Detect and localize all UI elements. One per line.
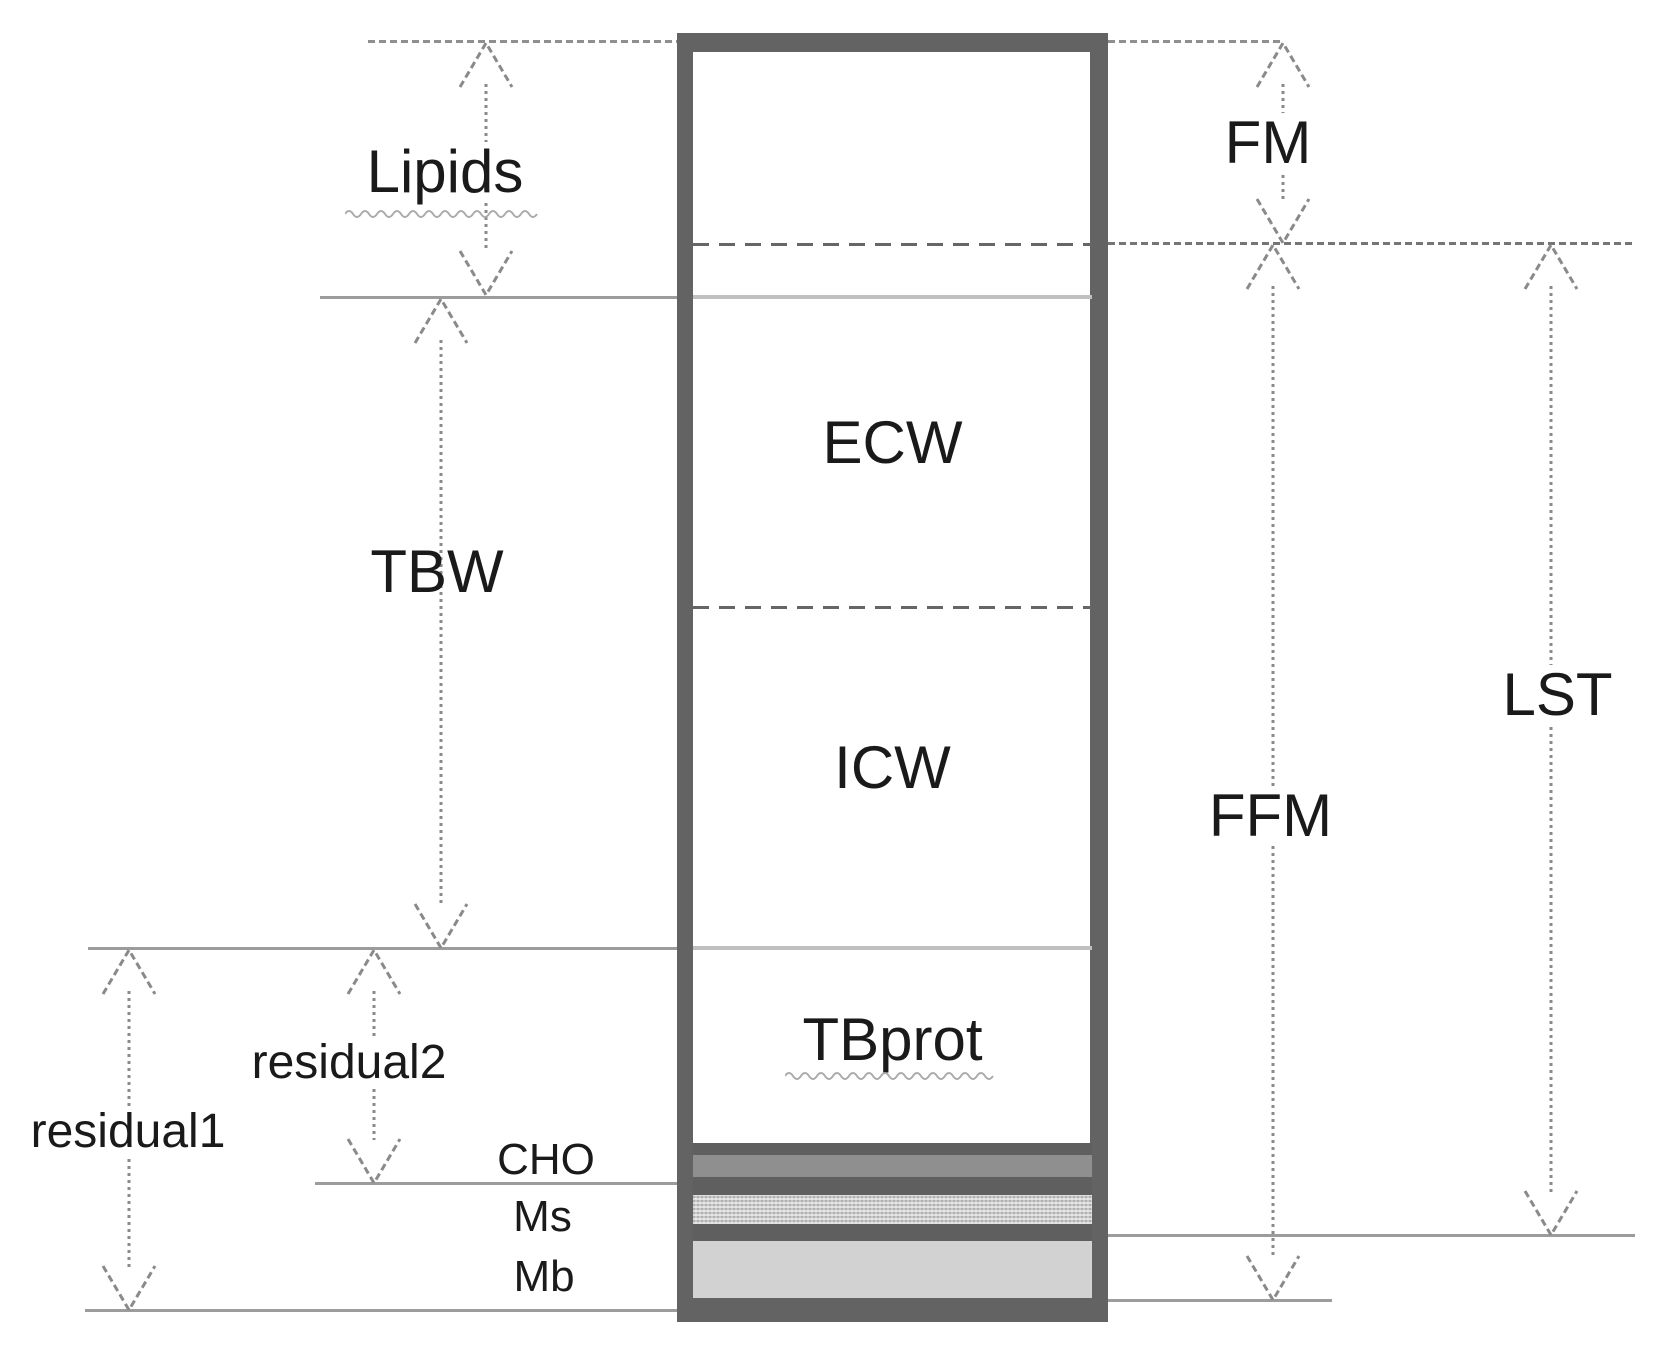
bottom-left-line — [85, 1309, 677, 1312]
fm-label: FM — [1218, 113, 1318, 173]
cho-band — [693, 1155, 1092, 1177]
tbw-dimension-arrow — [411, 296, 471, 951]
ecw-icw-boundary-dashed-line — [693, 606, 1092, 609]
ms-mb-border-band — [693, 1224, 1092, 1241]
compartment-column — [677, 33, 1108, 1322]
mb-band — [693, 1241, 1092, 1298]
ms-label: Ms — [490, 1195, 595, 1239]
top-left-extension-line — [368, 40, 677, 43]
cho-label: CHO — [490, 1138, 602, 1182]
tbprot-section-label: TBprot — [693, 1010, 1092, 1070]
fm-boundary-dashed-line — [693, 243, 1092, 246]
tbprot-top-inner-line — [693, 946, 1092, 950]
ffm-label: FFM — [1203, 786, 1338, 846]
body-composition-diagram: Lipids TBW residual1 residual2 CHO Ms Mb… — [0, 0, 1675, 1350]
lst-dimension-arrow — [1521, 242, 1581, 1238]
lipids-label: Lipids — [345, 142, 545, 202]
lipids-wavy-underline — [345, 208, 545, 218]
lipids-bottom-inner-line — [693, 295, 1092, 299]
ms-band — [693, 1195, 1092, 1224]
residual2-label: residual2 — [237, 1038, 461, 1088]
lst-label: LST — [1500, 665, 1615, 725]
ecw-section-label: ECW — [693, 413, 1092, 473]
mb-label: Mb — [490, 1255, 598, 1299]
tbprot-wavy-underline — [785, 1070, 997, 1080]
icw-section-label: ICW — [693, 738, 1092, 798]
tbw-label: TBW — [347, 542, 527, 602]
cho-top-border-band — [693, 1143, 1092, 1155]
cho-ms-border-band — [693, 1177, 1092, 1195]
residual1-label: residual1 — [23, 1107, 233, 1157]
ffm-dimension-arrow — [1243, 242, 1303, 1303]
